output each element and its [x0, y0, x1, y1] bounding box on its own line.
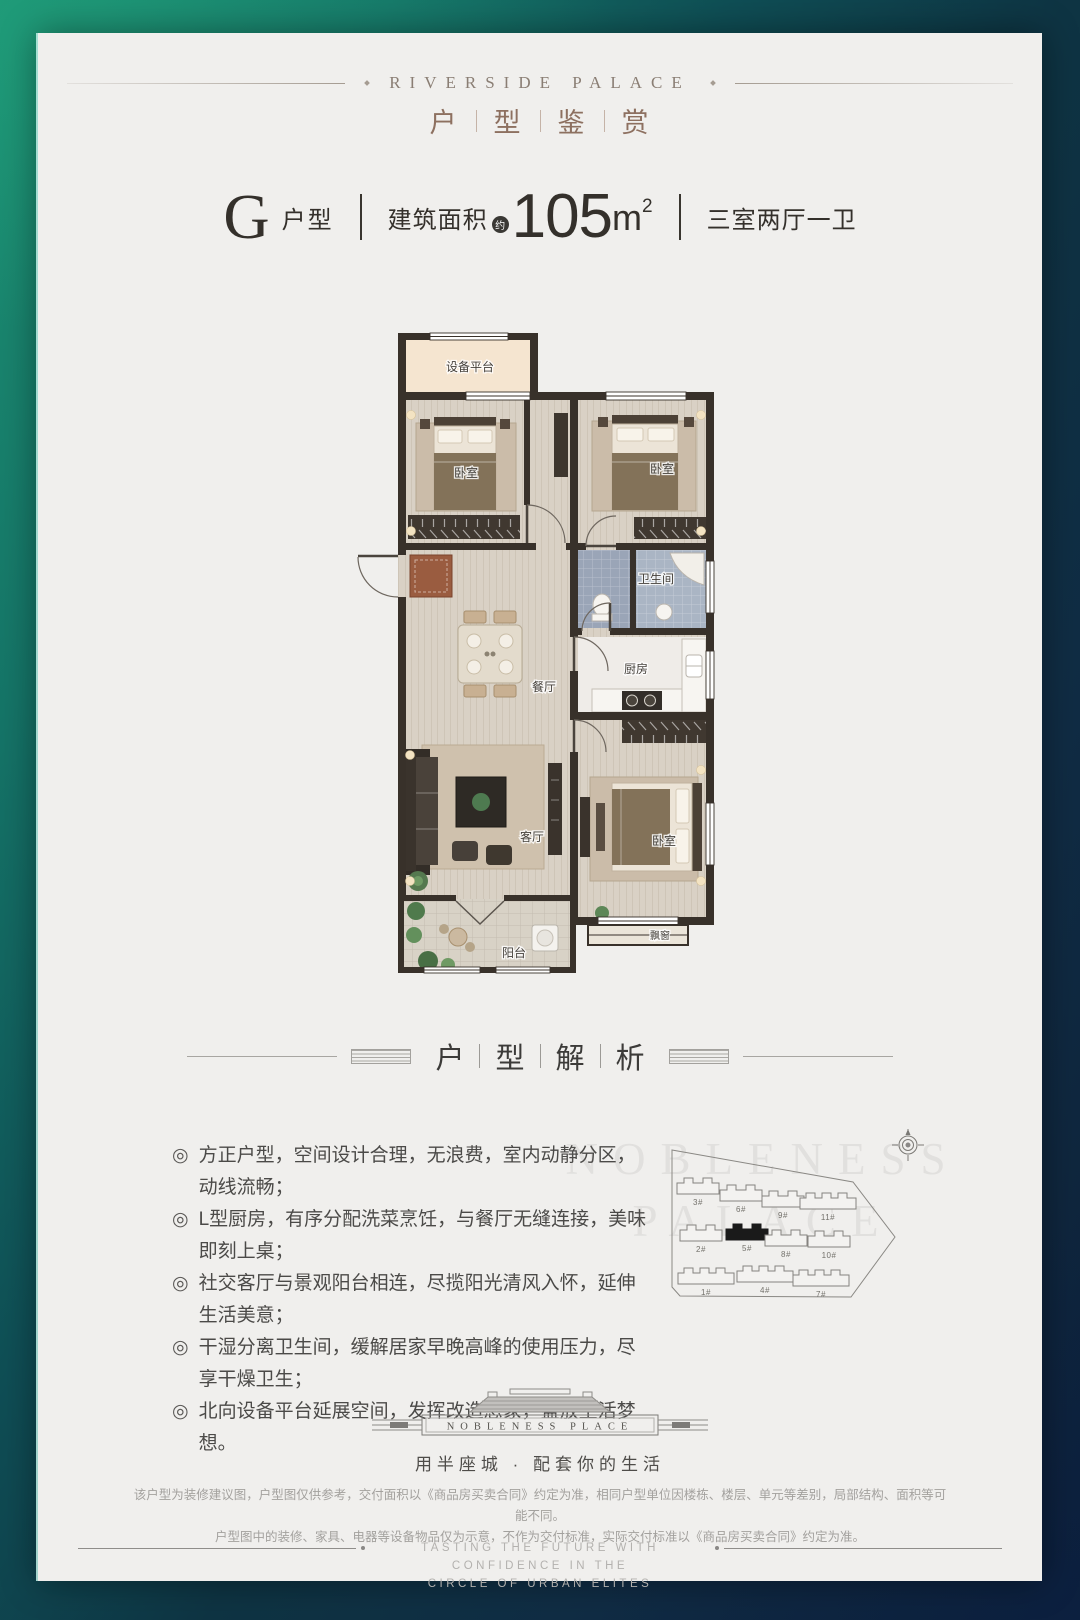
- header-right-line: [735, 83, 1013, 84]
- header-en-row: RIVERSIDE PALACE: [38, 73, 1042, 93]
- list-item: ◎方正户型，空间设计合理，无浪费，室内动静分区，动线流畅；: [172, 1140, 652, 1204]
- building-6: [720, 1185, 762, 1201]
- unit-letter: G: [223, 185, 269, 249]
- header-cn-title: 户 型 鉴 赏: [38, 101, 1042, 140]
- room-label-kitchen: 厨房: [624, 661, 648, 676]
- area-superscript: 2: [642, 196, 653, 217]
- logo-banner: NOBLENESS PLACE: [372, 1415, 708, 1435]
- poster-card: RIVERSIDE PALACE 户 型 鉴 赏 G 户型 建筑面积 约 105…: [38, 33, 1042, 1581]
- cn-char: 赏: [622, 101, 651, 140]
- bullet-icon: ◎: [172, 1140, 189, 1204]
- footer-slogan: TASTING THE FUTURE WITH CONFIDENCE IN TH…: [370, 1539, 710, 1593]
- analysis-left-line: [187, 1056, 337, 1057]
- building-8: [765, 1230, 807, 1246]
- title-divider: [360, 194, 362, 240]
- building-10: [808, 1231, 850, 1247]
- room-label-master: 卧室: [652, 833, 676, 848]
- unit-type-label: 户型: [282, 200, 334, 235]
- logo-roof: [470, 1389, 610, 1412]
- header-right-diamond: [710, 80, 716, 86]
- room-label-dining: 餐厅: [532, 679, 556, 694]
- analysis-separator: [600, 1044, 601, 1068]
- building-label: 8#: [781, 1250, 791, 1259]
- building-label: 11#: [821, 1213, 835, 1222]
- header-left-line: [67, 83, 345, 84]
- analysis-char: 解: [556, 1035, 585, 1077]
- cn-char: 鉴: [558, 101, 587, 140]
- entry-doormat: [410, 555, 452, 597]
- cn-separator: [604, 110, 605, 132]
- disclaimer-line-1: 该户型为装修建议图，户型图仅供参考，交付面积以《商品房买卖合同》约定为准，相同户…: [130, 1485, 950, 1527]
- rooms-label: 三室两厅一卫: [707, 200, 857, 235]
- room-label-balcony: 阳台: [502, 945, 526, 960]
- building-9: [762, 1191, 804, 1207]
- footer-left-dot: [361, 1546, 365, 1550]
- hall-cabinet: [554, 413, 568, 477]
- building-label: 7#: [816, 1290, 826, 1299]
- analysis-header: 户 型 解 析: [38, 1035, 1042, 1077]
- analysis-separator: [479, 1044, 480, 1068]
- footer-right-dot: [715, 1546, 719, 1550]
- building-label: 4#: [760, 1286, 770, 1295]
- footer-right-line: [724, 1548, 1002, 1549]
- building-label: 2#: [696, 1245, 706, 1254]
- analysis-char: 析: [616, 1035, 645, 1077]
- project-en-title: RIVERSIDE PALACE: [389, 73, 691, 93]
- area-unit: m2: [612, 196, 653, 239]
- living-furniture: [404, 745, 562, 891]
- building-label: 9#: [778, 1211, 788, 1220]
- analysis-title: 户 型 解 析: [435, 1035, 644, 1077]
- analysis-right-line: [743, 1056, 893, 1057]
- floorplan-drawing: 设备平台 卧室 卧室 卫生间 厨房 餐厅 客厅 卧室 阳台 飘窗: [340, 325, 720, 985]
- brand-logo-block: NOBLENESS PLACE 用半座城 · 配套你的生活: [38, 1387, 1042, 1475]
- building-1: [678, 1268, 734, 1284]
- list-item: ◎社交客厅与景观阳台相连，尽揽阳光清风入怀，延伸生活美意；: [172, 1268, 652, 1332]
- room-label-platform: 设备平台: [446, 359, 494, 374]
- room-label-bedroom-b: 卧室: [650, 461, 674, 476]
- footer-slogan-line-1: TASTING THE FUTURE WITH CONFIDENCE IN TH…: [370, 1539, 710, 1575]
- footer: TASTING THE FUTURE WITH CONFIDENCE IN TH…: [38, 1539, 1042, 1593]
- building-11: [800, 1193, 856, 1209]
- building-7: [793, 1270, 849, 1286]
- bullet-icon: ◎: [172, 1268, 189, 1332]
- building-label: 5#: [742, 1244, 752, 1253]
- building-label: 3#: [693, 1198, 703, 1207]
- site-buildings: [677, 1178, 856, 1286]
- header-left-diamond: [364, 80, 370, 86]
- area-value: 105: [512, 186, 612, 248]
- brand-logo: NOBLENESS PLACE: [360, 1387, 720, 1445]
- room-label-bathroom: 卫生间: [638, 572, 674, 586]
- building-2: [680, 1225, 722, 1241]
- footer-left-line: [78, 1548, 356, 1549]
- room-label-bay-window: 飘窗: [650, 929, 670, 942]
- building-5-highlighted: [726, 1224, 768, 1240]
- unit-title-row: G 户型 建筑面积 约 105 m2 三室两厅一卫: [38, 179, 1042, 255]
- bullet-text: 社交客厅与景观阳台相连，尽揽阳光清风入怀，延伸生活美意；: [199, 1268, 652, 1332]
- analysis-char: 型: [495, 1035, 524, 1077]
- analysis-char: 户: [435, 1035, 464, 1077]
- cn-char: 型: [494, 101, 523, 140]
- bullet-text: 方正户型，空间设计合理，无浪费，室内动静分区，动线流畅；: [199, 1140, 652, 1204]
- footer-slogan-line-2: CIRCLE OF URBAN ELITES: [370, 1575, 710, 1593]
- analysis-separator: [540, 1044, 541, 1068]
- siteplan-drawing: 3# 6# 9# 11# 2# 5# 8# 10# 1# 4# 7#: [650, 1125, 940, 1315]
- area-label: 建筑面积: [388, 200, 488, 235]
- analysis-right-block: [669, 1049, 729, 1064]
- building-label: 1#: [701, 1288, 711, 1297]
- list-item: ◎L型厨房，有序分配洗菜烹饪，与餐厅无缝连接，美味即刻上桌；: [172, 1204, 652, 1268]
- room-label-bedroom-a: 卧室: [454, 465, 478, 480]
- building-4: [737, 1266, 793, 1282]
- analysis-left-block: [351, 1049, 411, 1064]
- building-label: 10#: [822, 1251, 837, 1260]
- cn-separator: [540, 110, 541, 132]
- building-3: [677, 1178, 719, 1194]
- cn-separator: [476, 110, 477, 132]
- bullet-text: L型厨房，有序分配洗菜烹饪，与餐厅无缝连接，美味即刻上桌；: [199, 1204, 652, 1268]
- brand-tagline: 用半座城 · 配套你的生活: [415, 1450, 665, 1475]
- building-label: 6#: [736, 1205, 746, 1214]
- bullet-icon: ◎: [172, 1204, 189, 1268]
- compass-icon: [892, 1129, 924, 1161]
- cn-char: 户: [430, 101, 459, 140]
- room-label-living: 客厅: [520, 829, 544, 844]
- approx-badge: 约: [492, 216, 509, 233]
- title-divider: [679, 194, 681, 240]
- brand-name: NOBLENESS PLACE: [447, 1422, 634, 1433]
